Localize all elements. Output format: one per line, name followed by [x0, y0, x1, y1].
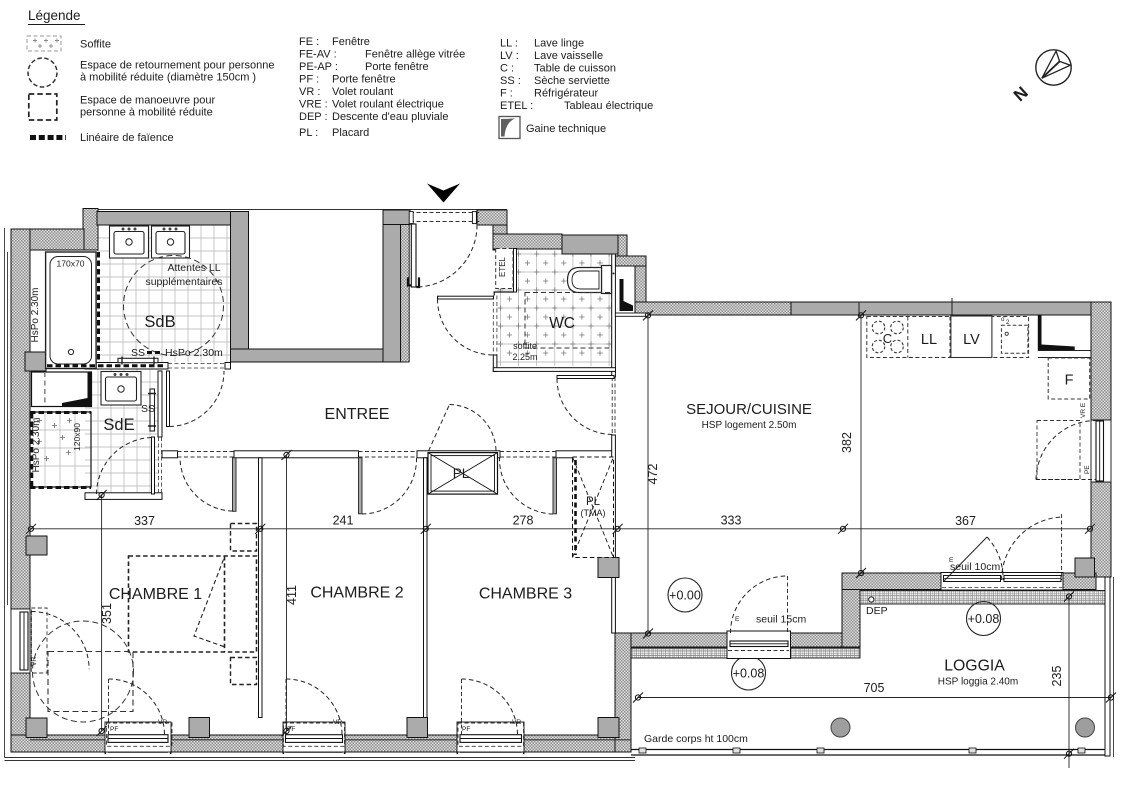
svg-text:F: F: [1065, 373, 1074, 389]
svg-text:278: 278: [513, 514, 534, 528]
svg-text:SdE: SdE: [103, 416, 134, 434]
svg-text:PE-AP :: PE-AP :: [299, 61, 338, 73]
svg-text:LL :: LL :: [500, 38, 518, 50]
svg-text:PF :: PF :: [299, 74, 319, 86]
svg-text:SS: SS: [141, 403, 155, 415]
svg-text:PL: PL: [453, 466, 470, 481]
svg-text:SS :: SS :: [500, 75, 521, 87]
svg-text:HSP loggia 2.40m: HSP loggia 2.40m: [938, 677, 1018, 688]
svg-text:333: 333: [721, 514, 742, 528]
svg-text:PF: PF: [110, 726, 118, 733]
svg-text:PE: PE: [1084, 465, 1091, 474]
svg-text:Attentes LL: Attentes LL: [167, 262, 220, 274]
svg-text:Table de cuisson: Table de cuisson: [534, 63, 616, 75]
svg-text:VR E: VR E: [1080, 402, 1087, 418]
svg-text:Descente d'eau pluviale: Descente d'eau pluviale: [332, 111, 448, 123]
svg-text:382: 382: [840, 432, 854, 453]
svg-text:soffite: soffite: [513, 341, 537, 351]
svg-text:120x90: 120x90: [72, 423, 82, 451]
svg-text:VR :: VR :: [299, 86, 320, 98]
svg-text:C :: C :: [500, 63, 514, 75]
svg-text:F :: F :: [500, 88, 513, 100]
svg-text:seuil 15cm: seuil 15cm: [756, 614, 806, 626]
svg-text:705: 705: [864, 681, 885, 695]
svg-text:Tableau électrique: Tableau électrique: [564, 100, 653, 112]
svg-text:2.25m: 2.25m: [512, 352, 537, 362]
svg-text:FE-AV :: FE-AV :: [299, 49, 337, 61]
svg-text:Soffite: Soffite: [80, 39, 111, 51]
svg-text:Espace de manoeuvre pour: Espace de manoeuvre pour: [80, 95, 215, 107]
svg-text:PF: PF: [462, 726, 470, 733]
svg-text:472: 472: [646, 464, 660, 485]
svg-text:E: E: [735, 616, 740, 623]
svg-text:Gaine technique: Gaine technique: [526, 123, 606, 135]
svg-text:LV :: LV :: [500, 50, 519, 62]
svg-text:PL: PL: [586, 496, 601, 508]
svg-text:Porte fenêtre: Porte fenêtre: [365, 61, 429, 73]
svg-text:VR: VR: [31, 657, 38, 666]
svg-text:seuil 10cm: seuil 10cm: [950, 561, 1000, 573]
svg-text:235: 235: [1050, 666, 1064, 687]
svg-text:HsPo 2.30m: HsPo 2.30m: [165, 347, 223, 359]
svg-text:CHAMBRE 3: CHAMBRE 3: [479, 586, 572, 603]
svg-text:Linéaire de faïence: Linéaire de faïence: [80, 132, 174, 144]
svg-text:CHAMBRE 1: CHAMBRE 1: [109, 586, 202, 603]
svg-text:Lave linge: Lave linge: [534, 38, 584, 50]
svg-text:337: 337: [134, 514, 155, 528]
svg-text:Volet roulant électrique: Volet roulant électrique: [332, 99, 444, 111]
svg-text:(TMA): (TMA): [581, 508, 606, 518]
svg-text:ENTREE: ENTREE: [325, 406, 390, 423]
svg-text:Sèche serviette: Sèche serviette: [534, 75, 610, 87]
svg-text:Fenêtre allège vitrée: Fenêtre allège vitrée: [365, 49, 465, 61]
svg-text:CHAMBRE 2: CHAMBRE 2: [310, 585, 403, 602]
svg-text:170x70: 170x70: [57, 259, 85, 269]
svg-text:SS: SS: [131, 347, 145, 359]
svg-text:367: 367: [955, 514, 976, 528]
svg-text:LL: LL: [921, 332, 937, 348]
svg-text:LOGGIA: LOGGIA: [944, 658, 1005, 675]
svg-text:Réfrigérateur: Réfrigérateur: [534, 88, 599, 100]
svg-text:Lave vaisselle: Lave vaisselle: [534, 50, 603, 62]
svg-text:à mobilité réduite (diamètre 1: à mobilité réduite (diamètre 150cm ): [80, 72, 256, 84]
svg-text:+0.00: +0.00: [669, 589, 701, 603]
svg-text:241: 241: [333, 514, 354, 528]
svg-text:SdB: SdB: [144, 313, 175, 331]
svg-text:Légende: Légende: [28, 8, 81, 23]
svg-text:Espace de retournement pour pe: Espace de retournement pour personne: [80, 60, 274, 72]
svg-text:Garde corps ht 100cm: Garde corps ht 100cm: [644, 733, 748, 745]
svg-text:PL :: PL :: [299, 127, 318, 139]
svg-text:σ: σ: [1001, 317, 1005, 323]
svg-text:DEP: DEP: [866, 605, 888, 617]
svg-text:Volet roulant: Volet roulant: [332, 86, 393, 98]
svg-text:Fenêtre: Fenêtre: [332, 36, 370, 48]
svg-text:C: C: [883, 331, 892, 346]
svg-text:ETEL :: ETEL :: [500, 100, 533, 112]
svg-text:SEJOUR/CUISINE: SEJOUR/CUISINE: [686, 401, 812, 418]
svg-text:Porte fenêtre: Porte fenêtre: [332, 74, 396, 86]
svg-text:DEP :: DEP :: [299, 111, 328, 123]
svg-text:HSP logement 2.50m: HSP logement 2.50m: [702, 420, 797, 431]
svg-text:HsPo 2.30m: HsPo 2.30m: [30, 287, 41, 342]
svg-text:VRE :: VRE :: [299, 99, 328, 111]
svg-text:Placard: Placard: [332, 127, 369, 139]
svg-text:411: 411: [285, 585, 299, 605]
svg-text:ETEL: ETEL: [498, 256, 507, 277]
svg-text:+0.08: +0.08: [733, 667, 765, 681]
svg-text:personne à mobilité réduite: personne à mobilité réduite: [80, 107, 213, 119]
svg-text:WC: WC: [549, 315, 575, 332]
svg-text:LV: LV: [963, 332, 980, 348]
svg-text:FE :: FE :: [299, 36, 319, 48]
svg-text:HsPo 2.30m: HsPo 2.30m: [31, 417, 42, 472]
svg-text:supplémentaires: supplémentaires: [145, 276, 222, 288]
svg-text:351: 351: [100, 603, 114, 624]
svg-text:+0.08: +0.08: [968, 612, 1000, 626]
